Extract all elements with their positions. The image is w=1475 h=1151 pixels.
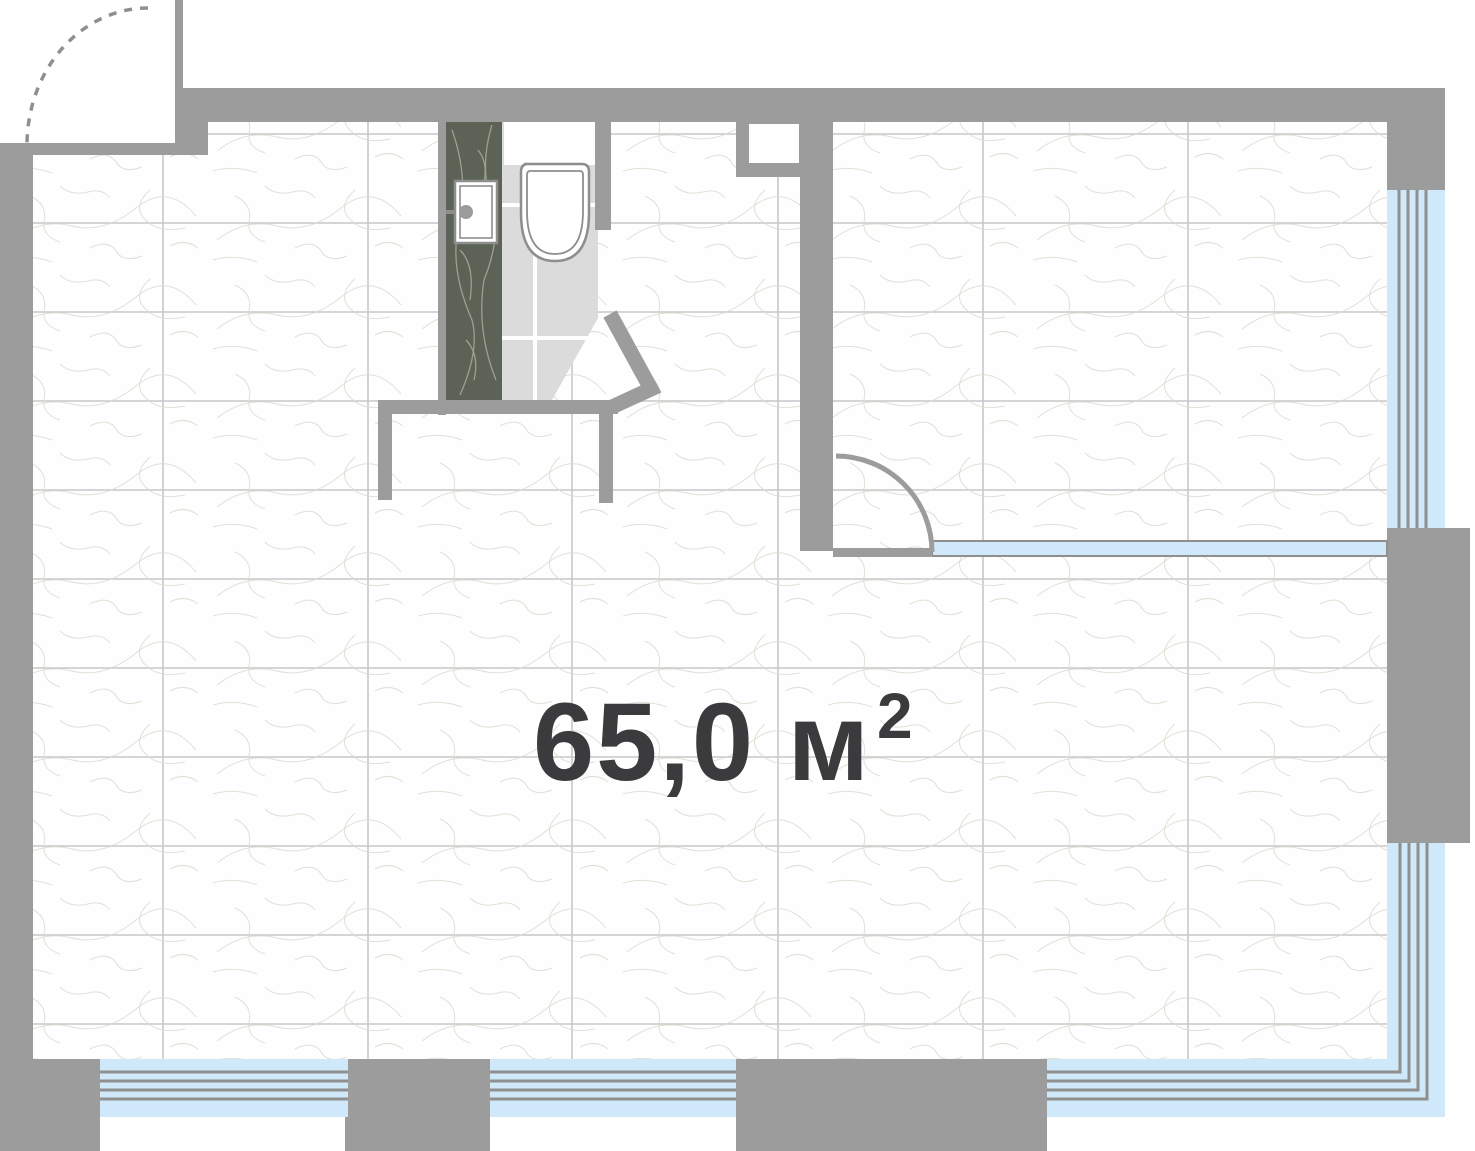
glass-partition <box>932 541 1387 556</box>
toilet-bowl-outer <box>521 164 589 261</box>
room-door-leaf <box>833 548 932 557</box>
bathroom <box>446 122 598 400</box>
wall-bathroom-right <box>595 122 611 230</box>
floor-plan-canvas: 65,0 м2 <box>0 0 1475 1151</box>
wall-bottom-pier-2 <box>736 1059 1047 1151</box>
sink-faucet <box>459 205 473 219</box>
wall-closet-top <box>378 400 618 414</box>
wall-left <box>0 143 33 1151</box>
wall-right-middle <box>1387 528 1470 843</box>
floor-marble-texture <box>33 122 1387 1059</box>
toilet-tank <box>504 122 597 165</box>
wall-room-divider <box>800 122 833 551</box>
area-label: 65,0 м2 <box>533 680 915 804</box>
area-value: 65,0 м <box>533 681 871 804</box>
window-bottom-2 <box>490 1059 736 1117</box>
wall-bathroom-left <box>438 122 446 415</box>
bathroom-marble-wall <box>446 122 502 400</box>
wall-closet-right <box>599 414 613 503</box>
wall-bottom-pier-1 <box>345 1059 490 1151</box>
floor <box>33 122 1387 1059</box>
entrance-vestibule <box>33 122 175 143</box>
area-superscript: 2 <box>877 680 915 752</box>
wall-closet-left <box>378 414 392 500</box>
wall-bottom-left-pier <box>0 1059 100 1151</box>
entrance-door-frame <box>175 0 183 88</box>
shaft-niche <box>749 124 799 163</box>
window-glass <box>100 1059 348 1117</box>
window-bottom-1 <box>100 1059 348 1117</box>
window-glass <box>490 1059 736 1117</box>
window-right-upper <box>1387 190 1445 528</box>
floor-plan: 65,0 м2 <box>0 0 1475 1151</box>
